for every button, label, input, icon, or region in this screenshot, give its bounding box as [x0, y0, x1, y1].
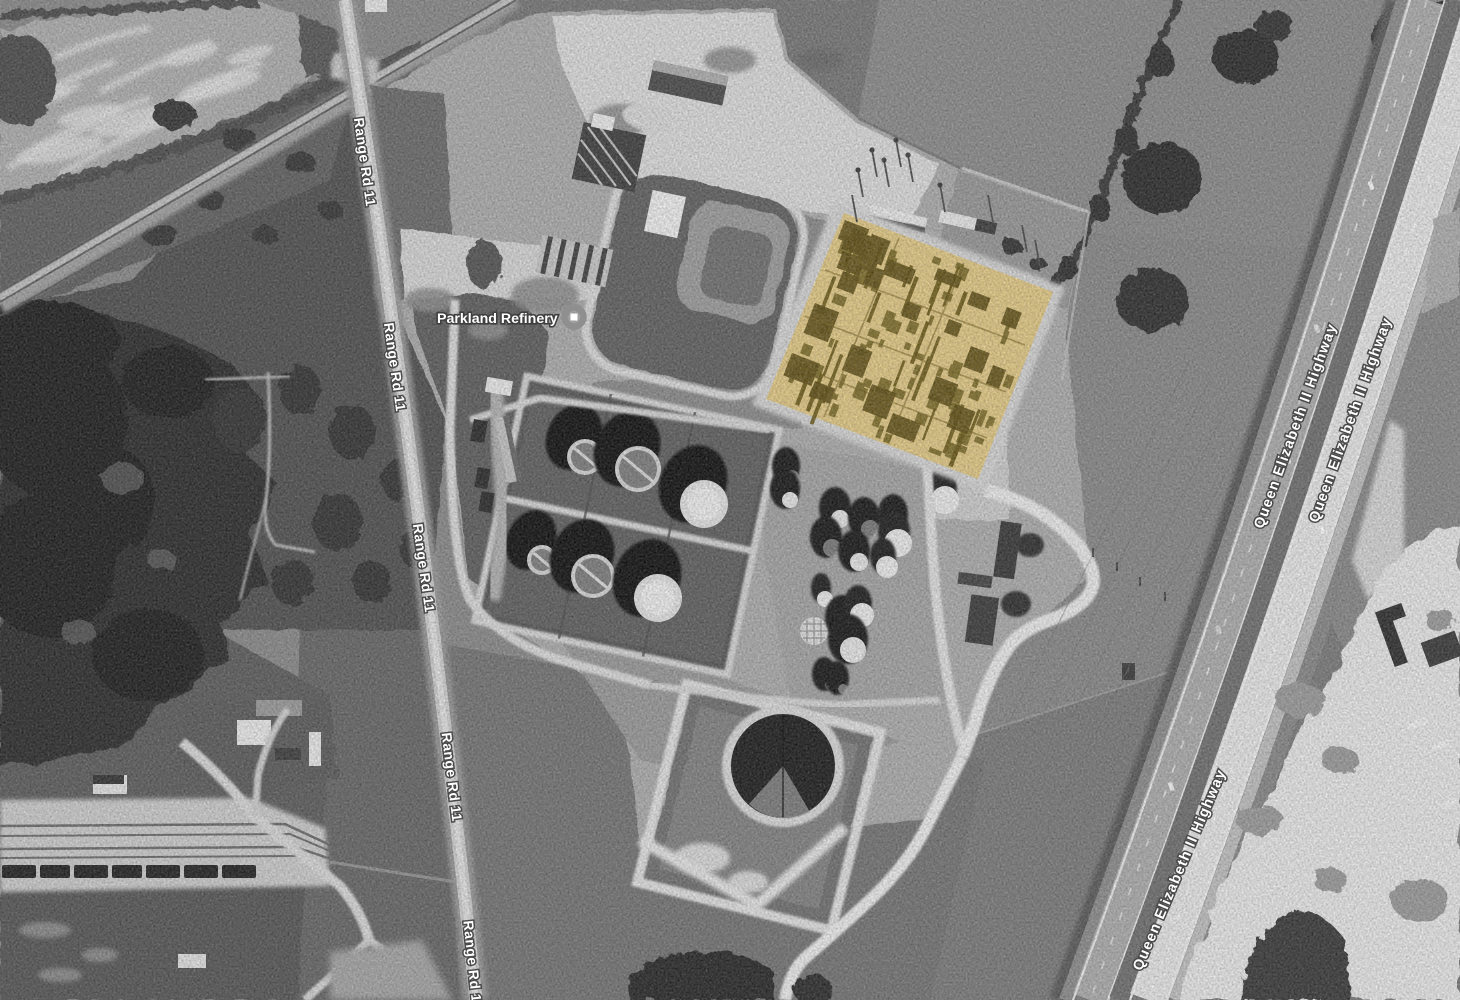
svg-text:Parkland Refinery: Parkland Refinery	[437, 311, 558, 327]
